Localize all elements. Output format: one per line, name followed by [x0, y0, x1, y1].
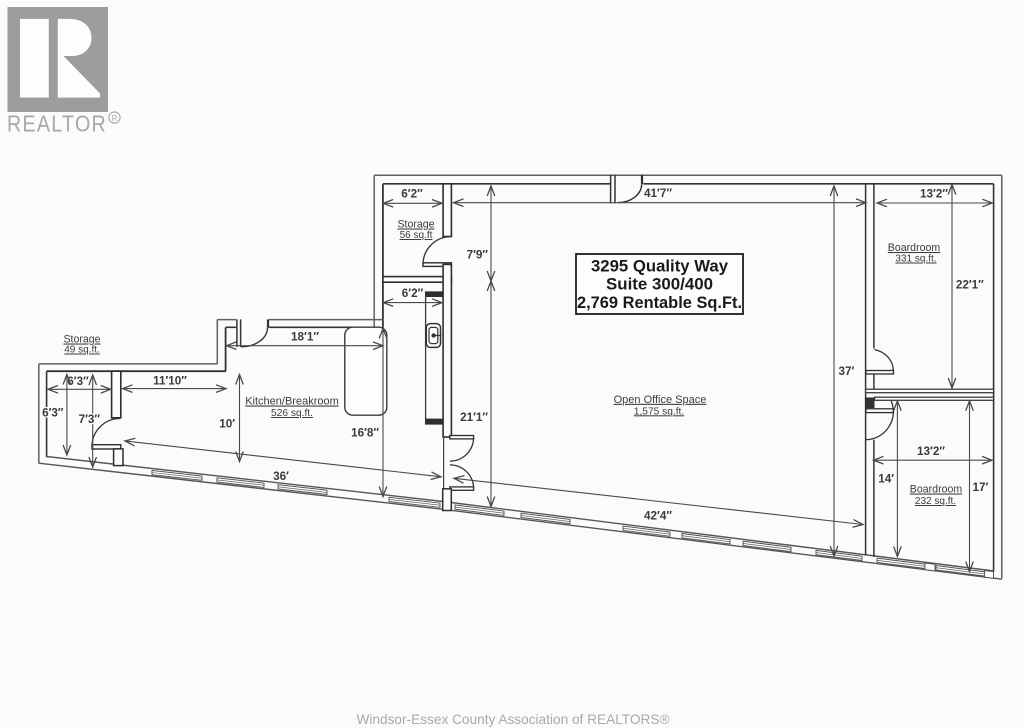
svg-text:REALTOR: REALTOR — [7, 111, 107, 137]
svg-text:7′9″: 7′9″ — [467, 249, 489, 262]
svg-text:17′: 17′ — [973, 481, 989, 494]
svg-text:13′2″: 13′2″ — [917, 445, 945, 458]
svg-text:56 sq.ft: 56 sq.ft — [400, 230, 433, 241]
svg-text:41′7″: 41′7″ — [644, 187, 672, 200]
svg-text:Suite 300/400: Suite 300/400 — [606, 275, 713, 294]
svg-text:21′1″: 21′1″ — [460, 411, 488, 424]
svg-text:Windsor-Essex County Associati: Windsor-Essex County Association of REAL… — [357, 711, 671, 727]
svg-text:14′: 14′ — [878, 472, 894, 485]
svg-text:2,769 Rentable Sq.Ft.: 2,769 Rentable Sq.Ft. — [577, 293, 742, 312]
svg-text:13′2″: 13′2″ — [920, 187, 948, 200]
svg-text:3295 Quality Way: 3295 Quality Way — [591, 257, 729, 276]
svg-text:331 sq.ft.: 331 sq.ft. — [895, 254, 936, 265]
svg-text:49 sq.ft.: 49 sq.ft. — [64, 345, 100, 356]
svg-text:37′: 37′ — [839, 365, 855, 378]
svg-text:232 sq.ft.: 232 sq.ft. — [915, 496, 956, 507]
svg-text:6′2″: 6′2″ — [402, 287, 424, 300]
svg-text:Storage: Storage — [397, 219, 434, 231]
svg-text:Boardroom: Boardroom — [910, 484, 963, 496]
svg-text:R: R — [112, 114, 118, 123]
svg-text:1,575 sq.ft.: 1,575 sq.ft. — [634, 406, 684, 417]
svg-text:Kitchen/Breakroom: Kitchen/Breakroom — [245, 396, 339, 408]
svg-text:6′2″: 6′2″ — [401, 187, 423, 200]
svg-text:16′8″: 16′8″ — [351, 427, 379, 440]
svg-text:526 sq.ft.: 526 sq.ft. — [271, 408, 313, 419]
svg-text:36′: 36′ — [273, 470, 289, 483]
svg-text:10′: 10′ — [219, 417, 235, 430]
svg-text:6′3″: 6′3″ — [42, 406, 64, 419]
svg-text:6′3″: 6′3″ — [67, 375, 89, 388]
svg-text:18′1″: 18′1″ — [291, 330, 319, 343]
svg-text:7′3″: 7′3″ — [79, 413, 101, 426]
svg-text:22′1″: 22′1″ — [956, 279, 984, 292]
svg-text:42′4″: 42′4″ — [644, 510, 672, 523]
svg-text:Open Office Space: Open Office Space — [614, 394, 707, 406]
svg-text:Boardroom: Boardroom — [888, 242, 941, 254]
svg-text:11′10″: 11′10″ — [153, 375, 187, 388]
